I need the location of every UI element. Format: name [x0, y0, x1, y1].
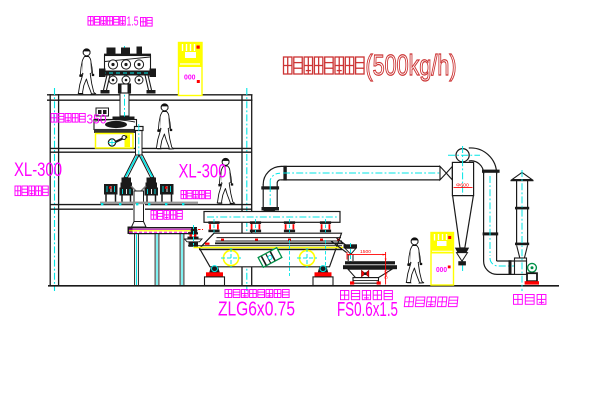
- svg-text:1500: 1500: [360, 249, 372, 254]
- svg-text:000: 000: [184, 73, 196, 82]
- svg-text:ZLG6x0.75: ZLG6x0.75: [218, 299, 295, 321]
- svg-text:1.5: 1.5: [127, 14, 139, 29]
- svg-text:345: 345: [384, 269, 389, 279]
- svg-text:(500kg/h): (500kg/h): [366, 50, 457, 82]
- svg-text:000: 000: [436, 265, 447, 274]
- svg-text:Φ600: Φ600: [456, 182, 469, 187]
- svg-text:FS0.6x1.5: FS0.6x1.5: [337, 299, 398, 321]
- svg-text:XL-300: XL-300: [14, 160, 62, 181]
- svg-text:XL-300: XL-300: [179, 162, 227, 183]
- svg-text:350: 350: [87, 112, 107, 127]
